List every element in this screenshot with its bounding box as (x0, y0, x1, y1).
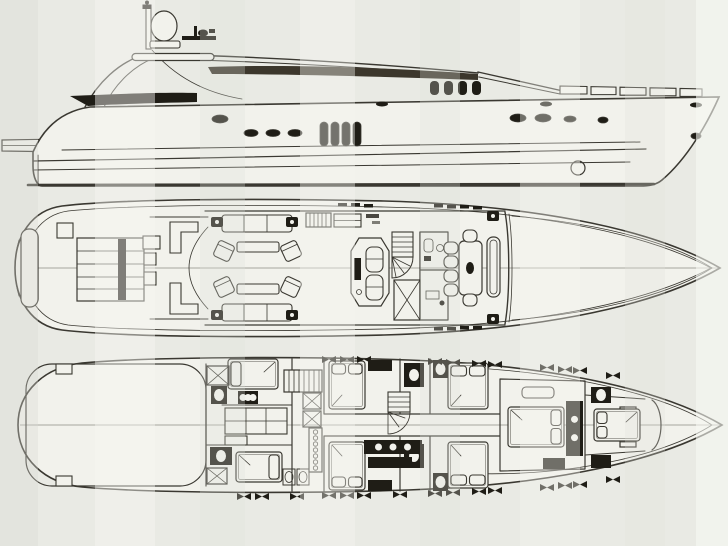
main-deck-plan (15, 199, 720, 336)
dining-chair (444, 284, 458, 296)
pillow (451, 475, 467, 485)
side-stairs (306, 213, 361, 227)
dark-fixture (211, 386, 227, 404)
hull-porthole-mark (255, 493, 269, 500)
lower-deck-plan (18, 356, 722, 500)
bed (594, 409, 640, 441)
hull-profile (33, 97, 719, 186)
dining-chair (444, 256, 458, 268)
dark-fixture (433, 473, 448, 491)
hull-porthole-mark (446, 489, 460, 496)
dark-fixture (368, 360, 392, 371)
bow-bulwark-pane (591, 87, 616, 95)
hull-porthole-mark (558, 482, 572, 489)
dark-fixture (543, 458, 565, 469)
hull-porthole-mark (237, 493, 251, 500)
deck-fitting (376, 102, 388, 107)
corner-speaker (211, 217, 223, 227)
hull-porthole-mark (393, 491, 407, 498)
bed (228, 359, 278, 389)
dark-fixture (238, 391, 258, 404)
window-dash (460, 326, 469, 330)
pillow (597, 427, 607, 439)
hull-porthole-mark (488, 487, 502, 494)
coffee-table (237, 242, 279, 252)
porthole (510, 114, 526, 122)
hull-porthole-mark (606, 476, 620, 483)
bow-bulwark-pane (560, 86, 587, 94)
deck-fitting (540, 102, 552, 107)
porthole (564, 116, 576, 122)
pillow (349, 477, 363, 487)
porthole (212, 115, 228, 123)
bow-bulwark-pane (680, 88, 702, 96)
bed (448, 442, 488, 488)
hull-porthole-mark (322, 492, 336, 499)
windshield (478, 72, 563, 91)
profile-view (2, 1, 719, 187)
down-label-smudge (366, 214, 379, 218)
crew-stairs (284, 370, 322, 392)
window-dash (473, 206, 482, 210)
porthole (535, 114, 551, 122)
helm-seat (366, 275, 383, 300)
radar-dome (151, 11, 177, 41)
window-dash (447, 205, 456, 209)
dining-chair (444, 270, 458, 282)
window-dash (434, 204, 443, 208)
porthole (244, 130, 258, 137)
hull-porthole-mark (573, 367, 587, 374)
radar-arch (132, 1, 216, 61)
corner-speaker (286, 310, 298, 320)
superstructure-window (458, 81, 467, 95)
hull-porthole-mark (558, 366, 572, 373)
pillow (269, 455, 279, 479)
bed (448, 363, 488, 409)
dark-fixture (566, 401, 583, 456)
saloon-sofa (222, 215, 292, 232)
aft-sunpad (77, 238, 144, 301)
helm-seat (366, 247, 383, 272)
hull-porthole-mark (357, 492, 371, 499)
window-dash (434, 327, 443, 331)
hull-porthole-mark (573, 481, 587, 488)
window-dash (473, 326, 482, 330)
porthole (691, 133, 701, 139)
hull-porthole-mark (540, 364, 554, 371)
corner-speaker (487, 211, 499, 221)
pillow (451, 366, 467, 376)
hull-porthole-mark (472, 488, 486, 495)
bow-bulwark-pane (650, 88, 676, 96)
hull-porthole-mark (290, 493, 304, 500)
dark-fixture (368, 457, 412, 468)
transom-step (57, 223, 73, 238)
window-dash (364, 204, 373, 208)
coffee-table (237, 284, 279, 294)
window-dash (447, 327, 456, 331)
hardtop-roof (208, 66, 478, 80)
hull-window (342, 122, 350, 146)
helm-station (351, 238, 389, 306)
dark-fixture (368, 480, 392, 491)
dark-fixture (364, 440, 422, 454)
master-sofa (522, 387, 554, 398)
dining-bench (487, 237, 500, 297)
dark-fixture (591, 387, 611, 403)
waterline (28, 184, 654, 185)
pillow (597, 412, 607, 424)
spreader-bar (132, 54, 214, 61)
porthole (288, 130, 302, 137)
hull-porthole-mark (540, 484, 554, 491)
yacht-layout-scan (0, 0, 728, 546)
deck-fitting (690, 103, 702, 108)
superstructure-window (430, 81, 439, 95)
pillow (551, 429, 561, 445)
dining-chair (463, 230, 477, 242)
pillow (332, 477, 346, 487)
pillow (470, 475, 486, 485)
dining-area (459, 237, 500, 297)
corner-speaker (286, 217, 298, 227)
corner-speaker (211, 310, 223, 320)
hull-window (320, 122, 328, 146)
hull-window (353, 122, 361, 146)
bed (236, 452, 282, 482)
window-dash (351, 203, 360, 207)
bow-bulwark-pane (620, 87, 646, 95)
saloon-sofa (222, 304, 292, 321)
dark-fixture (210, 447, 232, 465)
dark-fixture (404, 363, 424, 387)
window-dash (460, 205, 469, 209)
dining-chair (444, 242, 458, 254)
pillow (332, 364, 346, 374)
swim-platform (21, 229, 38, 307)
pillow (349, 364, 363, 374)
dining-chair (463, 294, 477, 306)
pillow (231, 362, 241, 386)
dark-fixture (591, 455, 611, 468)
bed (329, 442, 365, 490)
hull-porthole-mark (606, 372, 620, 379)
porthole (598, 117, 608, 123)
superstructure-window (472, 81, 481, 95)
pillow (470, 366, 486, 376)
pillow (551, 410, 561, 426)
bed (329, 361, 365, 409)
hull-window (331, 122, 339, 146)
corner-speaker (487, 314, 499, 324)
aft-tinted-window (70, 93, 197, 106)
window-dash (338, 203, 347, 207)
porthole (266, 130, 280, 137)
bed (508, 407, 564, 447)
hull-porthole-mark (340, 492, 354, 499)
superstructure-window (444, 81, 453, 95)
